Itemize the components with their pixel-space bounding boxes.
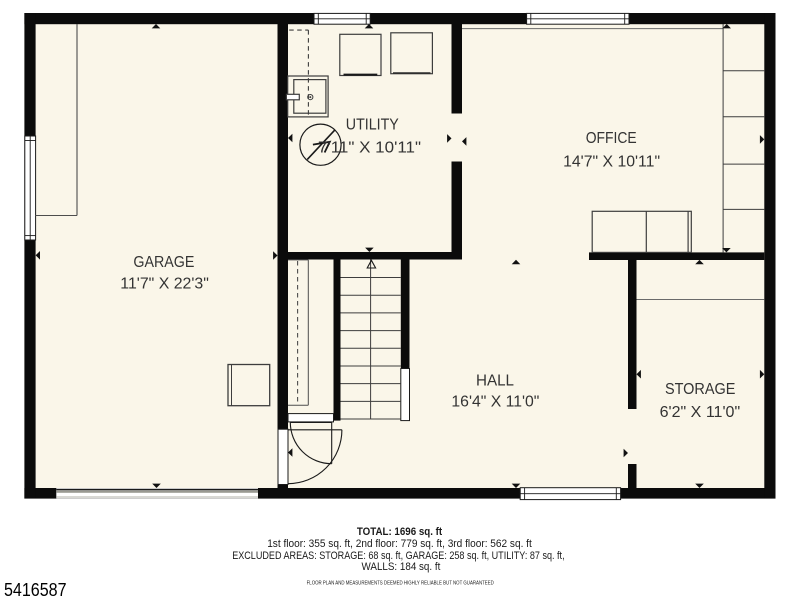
svg-text:14'7" X 10'11": 14'7" X 10'11" (563, 153, 660, 170)
svg-text:5416587: 5416587 (4, 580, 67, 600)
svg-text:UTILITY: UTILITY (346, 116, 399, 133)
svg-text:11'7" X 22'3": 11'7" X 22'3" (120, 276, 209, 293)
svg-text:6'2" X 11'0": 6'2" X 11'0" (660, 404, 741, 421)
svg-text:1st floor: 355 sq. ft, 2nd flo: 1st floor: 355 sq. ft, 2nd floor: 779 sq… (267, 538, 532, 550)
svg-text:7'11" X 10'11": 7'11" X 10'11" (318, 139, 421, 156)
svg-text:TOTAL: 1696 sq. ft: TOTAL: 1696 sq. ft (357, 526, 442, 538)
svg-text:HALL: HALL (476, 373, 514, 390)
svg-text:GARAGE: GARAGE (133, 254, 194, 271)
svg-text:STORAGE: STORAGE (665, 381, 736, 398)
svg-text:FLOOR PLAN AND MEASUREMENTS DE: FLOOR PLAN AND MEASUREMENTS DEEMED HIGHL… (307, 581, 495, 587)
svg-text:WALLS: 184 sq. ft: WALLS: 184 sq. ft (362, 561, 442, 573)
svg-text:OFFICE: OFFICE (586, 130, 637, 147)
svg-text:16'4" X 11'0": 16'4" X 11'0" (451, 394, 539, 411)
